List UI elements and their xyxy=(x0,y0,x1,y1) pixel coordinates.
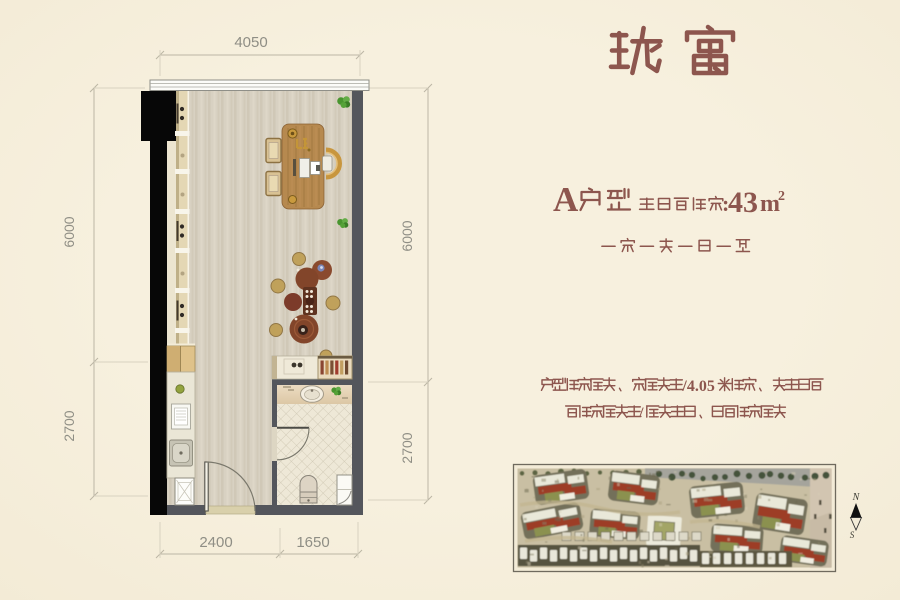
svg-text:1650: 1650 xyxy=(296,534,329,551)
svg-text:6000: 6000 xyxy=(399,220,415,251)
svg-text:/4.05: /4.05 xyxy=(681,378,714,395)
svg-text:2: 2 xyxy=(778,189,785,204)
svg-text:S: S xyxy=(850,530,855,540)
svg-text:/: / xyxy=(638,405,644,421)
svg-text:N: N xyxy=(852,492,861,503)
svg-text:2400: 2400 xyxy=(199,534,232,551)
svg-text:m: m xyxy=(760,191,780,217)
svg-text:2700: 2700 xyxy=(399,432,415,463)
svg-text:6000: 6000 xyxy=(61,216,77,247)
svg-text:43: 43 xyxy=(728,186,758,219)
svg-text:2700: 2700 xyxy=(61,410,77,441)
svg-text:A: A xyxy=(553,180,579,219)
svg-text:4050: 4050 xyxy=(234,34,267,51)
